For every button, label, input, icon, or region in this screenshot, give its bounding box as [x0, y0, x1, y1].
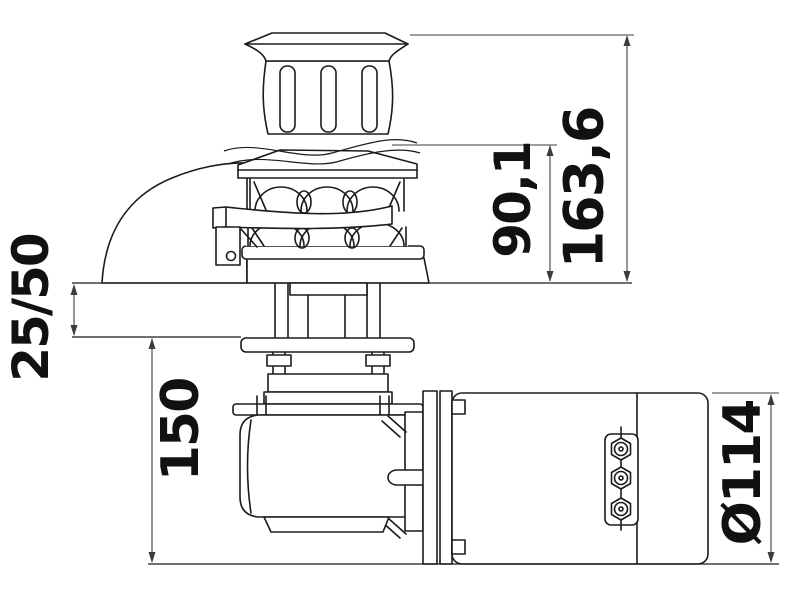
drum-slot: [321, 66, 336, 132]
terminal-block: [605, 427, 638, 530]
terminal-stud: [612, 438, 631, 460]
drum-slot: [362, 66, 377, 132]
motor-diameter-label: Ø114: [713, 401, 773, 546]
gypsy-height-label: 90,1: [484, 142, 542, 257]
windlass-diagram-svg: 163,6 90,1 25/50 150 Ø114: [0, 0, 800, 600]
gypsy-base-skirt: [242, 246, 429, 283]
overall-height-label: 163,6: [553, 108, 616, 269]
motor-clip-top: [452, 400, 465, 414]
motor-flange-plate: [423, 391, 437, 564]
windlass-technical-drawing: 163,6 90,1 25/50 150 Ø114: [0, 0, 800, 600]
below-deck-depth-label: 150: [151, 379, 211, 482]
electric-motor: [423, 391, 708, 564]
capstan-drum: [245, 33, 408, 134]
stud-nut: [366, 355, 390, 366]
motor-clip-bottom: [452, 540, 465, 554]
motor-end-bracket: [440, 391, 452, 564]
terminal-stud: [612, 498, 631, 520]
drum-slot: [280, 66, 295, 132]
dimension-motor-diameter: Ø114: [712, 393, 779, 563]
gearbox-foot: [264, 517, 389, 532]
terminal-stud: [612, 467, 631, 489]
stud-nut: [267, 355, 291, 366]
motor-coupling: [388, 470, 424, 485]
motor-body: [452, 393, 708, 564]
deck-thickness-label: 25/50: [2, 234, 60, 382]
